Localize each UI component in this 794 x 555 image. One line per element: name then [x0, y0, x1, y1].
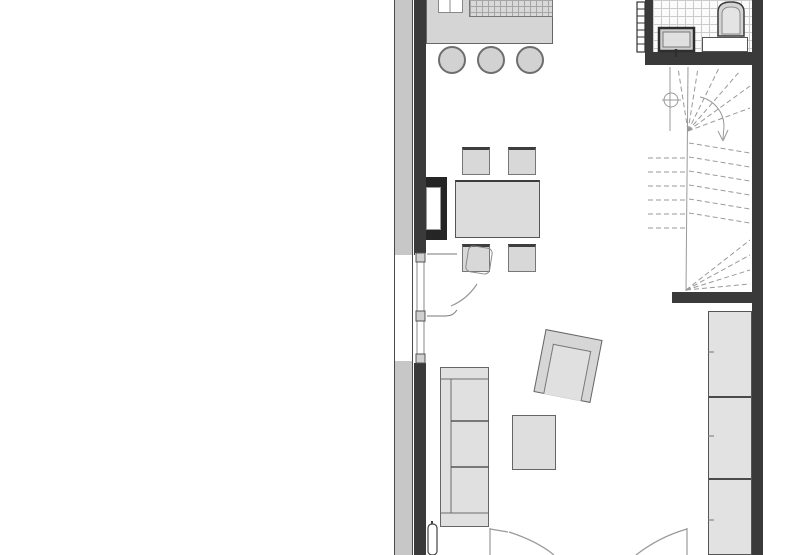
dining-chair — [462, 244, 490, 272]
dining-chair — [508, 147, 536, 175]
bathroom-bottom-wall — [645, 52, 752, 65]
stair-bottom-wall — [672, 292, 752, 303]
armchair-seat — [543, 344, 591, 402]
bar-stool — [438, 46, 466, 74]
radiator — [637, 2, 645, 52]
wardrobe-divider — [709, 478, 751, 480]
door-swing-arc — [451, 284, 477, 306]
left-wall-upper — [414, 0, 426, 255]
coffee-table — [512, 415, 556, 470]
outer-wall-window-section — [394, 255, 413, 361]
sofa — [440, 367, 489, 527]
left-wall-lower — [414, 363, 426, 555]
wall-capsule-object — [428, 521, 437, 555]
door-swing-arc-right — [636, 529, 687, 555]
staircase — [648, 67, 750, 291]
floor-plan — [0, 0, 794, 555]
dining-table — [455, 180, 540, 238]
bar-stool — [516, 46, 544, 74]
walking-line-arrow — [718, 131, 723, 141]
wardrobe — [708, 311, 752, 555]
armchair — [533, 329, 602, 403]
walking-line-arc — [700, 97, 724, 126]
kitchen-tiled-worktop — [469, 0, 553, 17]
wardrobe-divider — [709, 396, 751, 398]
bathroom-shelf — [702, 37, 748, 52]
right-wall — [752, 0, 763, 555]
kitchen-sink — [438, 0, 463, 13]
dining-chair — [508, 244, 536, 272]
wall-fireplace — [426, 177, 447, 240]
door-swing-arc-left — [509, 532, 554, 555]
dining-chair — [462, 147, 490, 175]
entry-doors — [490, 528, 687, 555]
newel-circle-symbol — [664, 93, 678, 107]
bar-stool — [477, 46, 505, 74]
